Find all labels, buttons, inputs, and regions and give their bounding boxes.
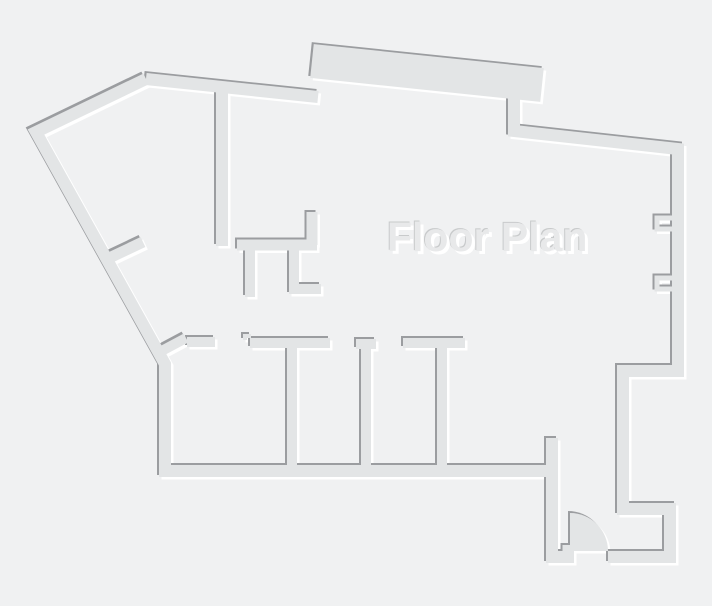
outer-wall-top xyxy=(146,79,318,97)
door-swing-arc xyxy=(570,513,608,551)
floor-plan-svg xyxy=(0,0,712,606)
left-jamb-stub-upper xyxy=(105,242,143,260)
window-jamb-lower xyxy=(657,278,673,289)
top-band-wall xyxy=(312,61,542,85)
center-partition-stub-b xyxy=(294,245,321,289)
floor-plan-canvas: Floor Plan xyxy=(0,0,712,606)
outer-wall-right xyxy=(514,95,678,557)
wall-group xyxy=(36,61,678,557)
left-jamb-stub-lower xyxy=(156,338,186,354)
window-jamb-upper xyxy=(657,218,673,229)
floor-plan-title: Floor Plan xyxy=(387,214,587,261)
